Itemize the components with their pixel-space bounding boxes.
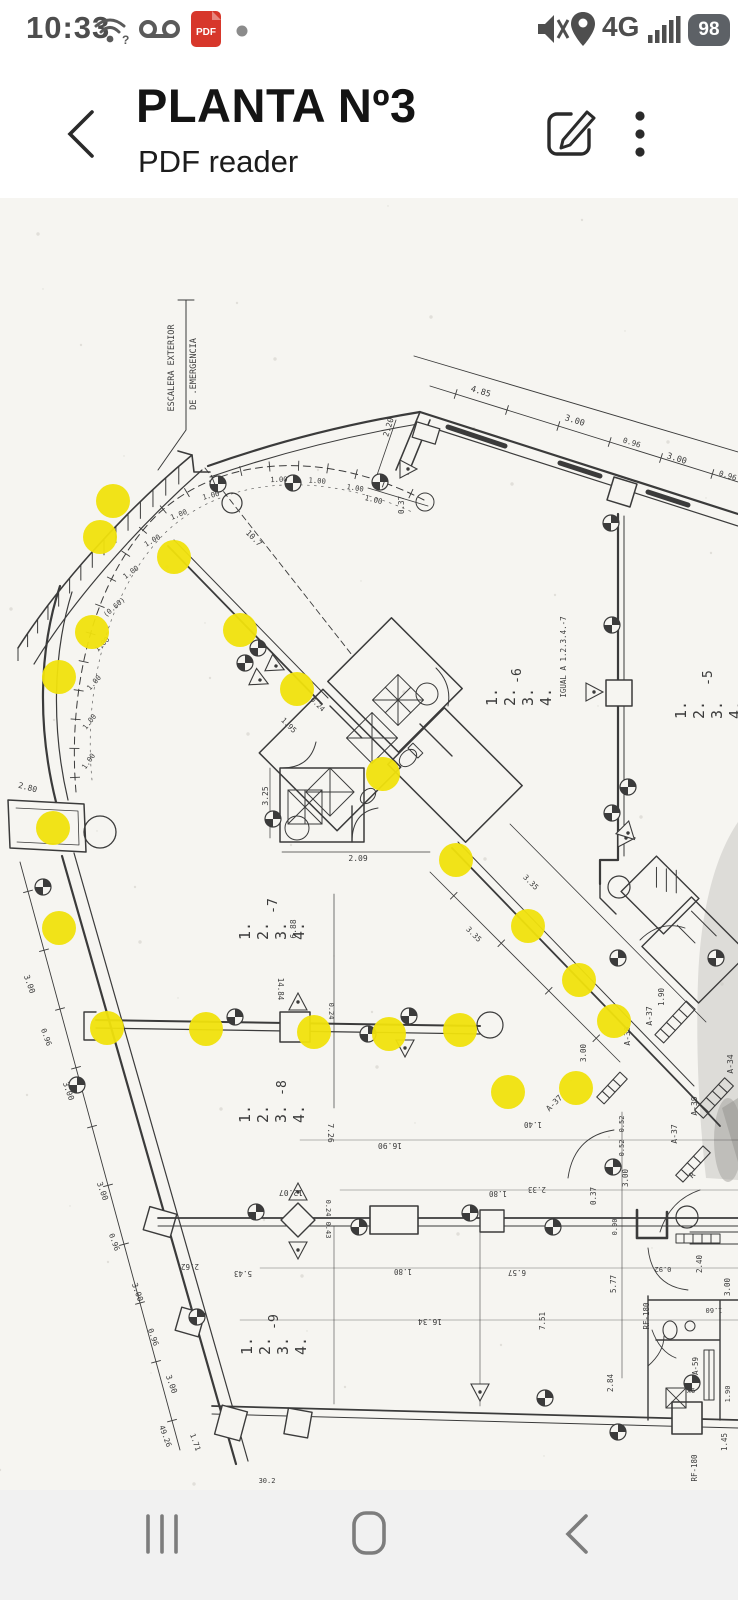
- dimension-label: 1.00: [270, 475, 288, 484]
- dimension-label: x6: [687, 1387, 695, 1395]
- stair-note-label: ESCALERA EXTERIOR: [167, 324, 177, 412]
- room-number-label: -8: [275, 1080, 290, 1096]
- room-number-label: -6: [510, 668, 525, 684]
- dimension-label: 0.90: [611, 1219, 619, 1236]
- highlight-dot[interactable]: [297, 1015, 331, 1049]
- notification-dot-icon: [236, 25, 250, 39]
- edit-button[interactable]: [545, 104, 597, 160]
- highlight-dot[interactable]: [83, 520, 117, 554]
- dimension-label: 14.84: [276, 978, 285, 1001]
- dimension-label: 12.07: [279, 1188, 303, 1197]
- highlight-dot[interactable]: [562, 963, 596, 997]
- dimension-label: 7.51: [538, 1312, 547, 1330]
- room-number-label: 4.: [290, 922, 308, 940]
- app-name: PDF reader: [138, 144, 298, 180]
- highlight-dot[interactable]: [75, 615, 109, 649]
- dimension-label: 2.09: [348, 854, 367, 863]
- back-nav-button[interactable]: [560, 1512, 596, 1556]
- room-number-label: -9: [267, 1314, 282, 1330]
- floor-plan-canvas[interactable]: 10.72.801.000.372.204.853.000.963.000.96…: [0, 0, 738, 1600]
- dimension-label: 16.90: [378, 1141, 402, 1150]
- overflow-menu-button[interactable]: [630, 108, 652, 160]
- room-number-label: 4.: [726, 701, 738, 719]
- stair-note-label: DE .EMERGENCIA: [189, 338, 199, 410]
- dimension-label: 0.92: [655, 1265, 672, 1273]
- dimension-label: 3.00: [621, 1168, 630, 1187]
- dimension-label: A-39: [690, 1096, 699, 1115]
- highlight-dot[interactable]: [42, 660, 76, 694]
- location-icon: [570, 10, 598, 50]
- highlight-dot[interactable]: [439, 843, 473, 877]
- highlight-dot[interactable]: [223, 613, 257, 647]
- status-bar: 10:33 ? PDF 4G 98: [0, 0, 738, 56]
- dimension-label: 2.40: [695, 1254, 704, 1273]
- dimension-label: 6.57: [508, 1268, 526, 1277]
- dimension-label: 1.80: [393, 1267, 412, 1276]
- dimension-label: RF-180: [642, 1302, 651, 1330]
- room-number-label: 1.: [483, 688, 501, 706]
- dimension-label: 5.77: [609, 1275, 618, 1293]
- app-header: PLANTA Nº3 PDF reader: [0, 56, 738, 198]
- signal-icon: [648, 16, 682, 46]
- dimension-label: 0.37: [397, 496, 406, 514]
- dimension-label: 2.84: [606, 1373, 615, 1392]
- highlight-dot[interactable]: [511, 909, 545, 943]
- highlight-dot[interactable]: [90, 1011, 124, 1045]
- wifi-icon: ?: [92, 12, 132, 50]
- dimension-label: 2.62: [181, 1262, 199, 1271]
- document-title: PLANTA Nº3: [136, 78, 417, 133]
- dimension-label: 0.24: [327, 1003, 335, 1020]
- highlight-dot[interactable]: [366, 757, 400, 791]
- highlight-dot[interactable]: [36, 811, 70, 845]
- android-navigation-bar: [0, 1490, 738, 1600]
- highlight-dot[interactable]: [443, 1013, 477, 1047]
- dimension-label: 0.43: [324, 1222, 332, 1239]
- room-number-label: 2.: [254, 1105, 272, 1123]
- recents-button[interactable]: [142, 1512, 186, 1556]
- dimension-label: A-34: [726, 1054, 735, 1073]
- room-number-label: 2.: [256, 1337, 274, 1355]
- room-number-label: 3.: [519, 688, 537, 706]
- dimension-label: 0.52: [618, 1140, 626, 1157]
- voicemail-icon: [138, 14, 182, 46]
- room-number-label: 1.: [236, 1105, 254, 1123]
- room-number-label: 1.: [236, 922, 254, 940]
- dimension-label: 16.34: [418, 1317, 442, 1326]
- room-number-label: 2.: [690, 701, 708, 719]
- svg-text:PDF: PDF: [196, 27, 216, 38]
- highlight-dot[interactable]: [491, 1075, 525, 1109]
- room-number-label: 3.: [274, 1337, 292, 1355]
- dimension-label: 0.24: [324, 1200, 332, 1217]
- dimension-label: 1.90: [724, 1386, 732, 1403]
- pdf-notification-icon: PDF: [190, 10, 224, 50]
- svg-text:?: ?: [122, 33, 129, 47]
- dimension-label: 3.00: [579, 1043, 588, 1062]
- dimension-label: 3.00: [723, 1277, 732, 1296]
- room-number-label: 4.: [537, 688, 555, 706]
- highlight-dot[interactable]: [597, 1004, 631, 1038]
- dimension-label: 2.33: [528, 1185, 546, 1194]
- dimension-label: 1.80: [488, 1189, 507, 1198]
- room-number-label: 1.: [238, 1337, 256, 1355]
- room-number-label: -5: [701, 670, 716, 686]
- dimension-label: 1.60: [706, 1306, 723, 1314]
- highlight-dot[interactable]: [96, 484, 130, 518]
- highlight-dot[interactable]: [559, 1071, 593, 1105]
- dimension-label: 0.37: [589, 1187, 598, 1205]
- highlight-dot[interactable]: [157, 540, 191, 574]
- dimension-label: RF-180: [690, 1454, 699, 1482]
- dimension-label: 0.52: [618, 1116, 626, 1133]
- battery-indicator: 98: [688, 14, 730, 46]
- network-type: 4G: [602, 11, 639, 43]
- room-number-label: 3.: [708, 701, 726, 719]
- pdf-page-viewport[interactable]: 10.72.801.000.372.204.853.000.963.000.96…: [0, 0, 738, 1600]
- room-number-label: 2.: [501, 688, 519, 706]
- room-number-label: 2.: [254, 922, 272, 940]
- dimension-label: A-37: [645, 1006, 654, 1025]
- room-number-label: 3.: [272, 922, 290, 940]
- room-number-label: 4.: [290, 1105, 308, 1123]
- highlight-dot[interactable]: [189, 1012, 223, 1046]
- dimension-label: 1.00: [308, 476, 326, 486]
- dimension-label: 1.90: [657, 987, 666, 1006]
- room-number-label: 3.: [272, 1105, 290, 1123]
- dimension-label: 3.25: [261, 786, 270, 805]
- highlight-dot[interactable]: [372, 1017, 406, 1051]
- back-button[interactable]: [62, 108, 104, 160]
- dimension-label: 5.43: [234, 1269, 252, 1278]
- dimension-label: A-59: [691, 1357, 700, 1375]
- dimension-label: IGUAL A 1.2.3.4.-7: [559, 616, 568, 697]
- mute-icon: [534, 12, 572, 48]
- highlight-dot[interactable]: [42, 911, 76, 945]
- dimension-label: 1.40: [523, 1120, 542, 1129]
- dimension-label: A-37: [670, 1124, 679, 1143]
- highlight-dot[interactable]: [280, 672, 314, 706]
- dimension-label: 1.45: [720, 1433, 729, 1451]
- dimension-label: 7.26: [326, 1123, 335, 1142]
- room-number-label: 1.: [672, 701, 690, 719]
- home-button[interactable]: [351, 1510, 391, 1558]
- room-number-label: -7: [266, 898, 281, 914]
- dimension-label: 30.2: [259, 1477, 276, 1485]
- room-number-label: 4.: [292, 1337, 310, 1355]
